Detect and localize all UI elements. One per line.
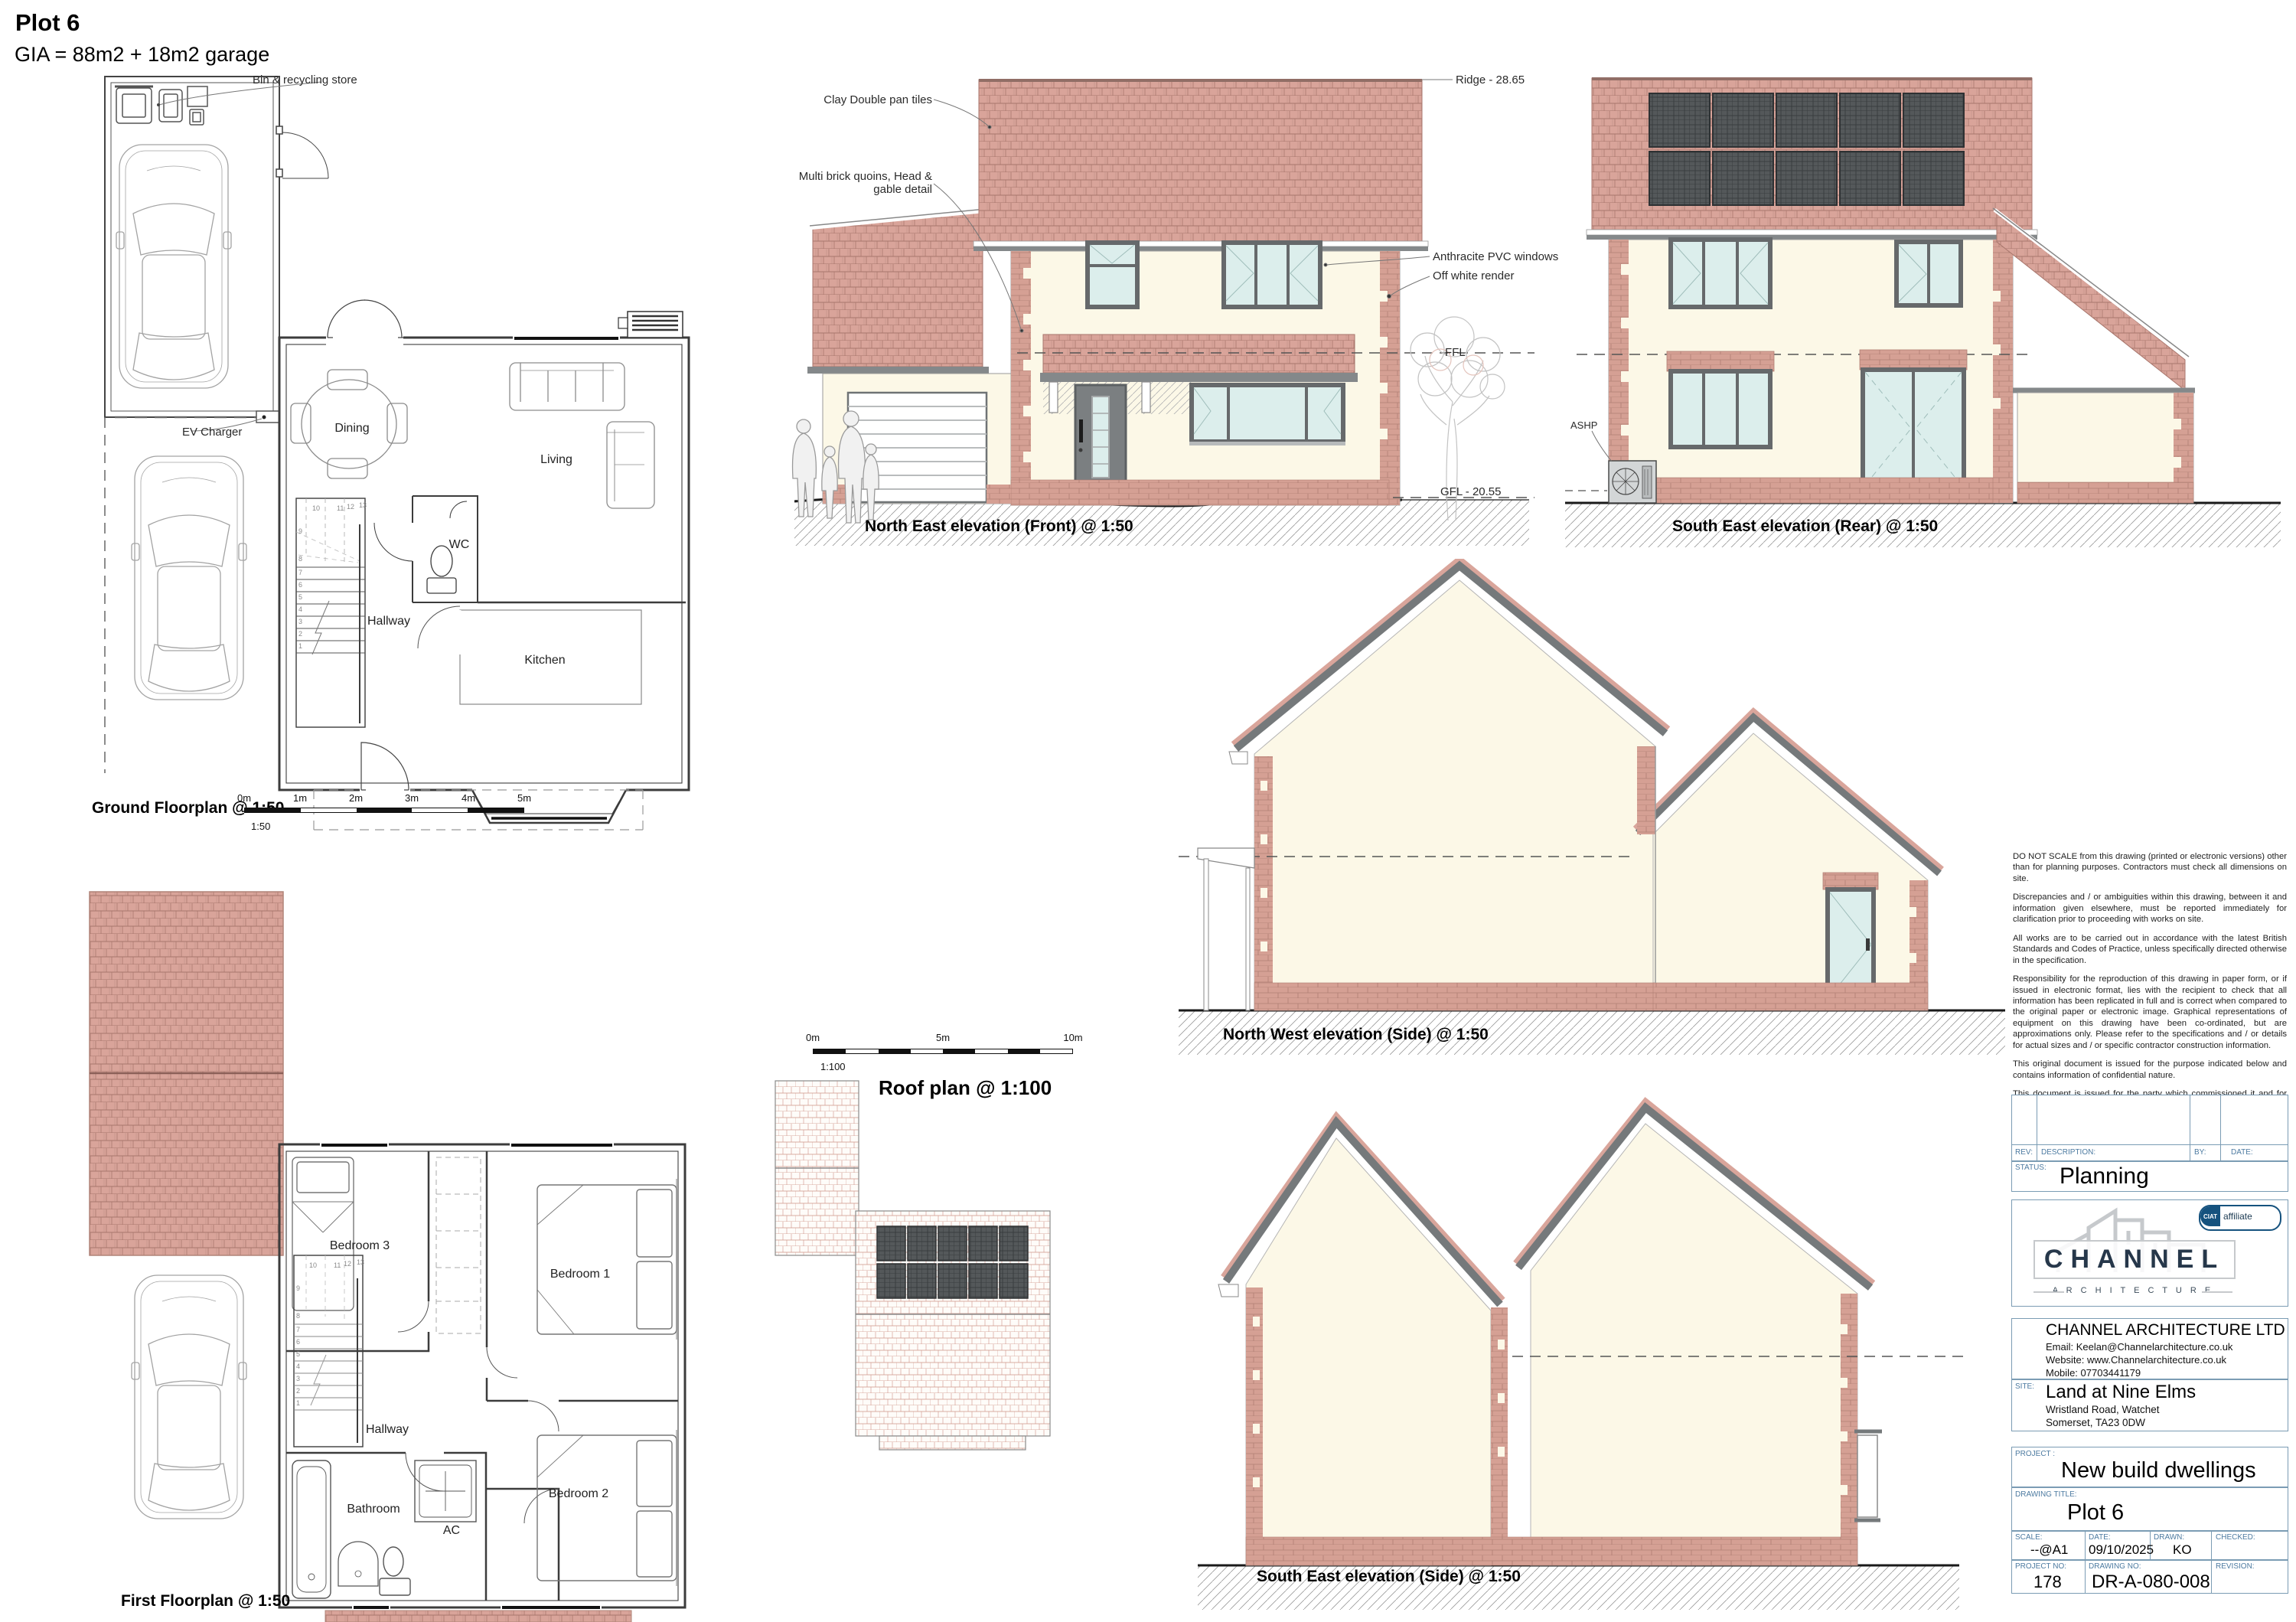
drawing-no-label: DRAWING NO:	[2089, 1562, 2141, 1571]
ann-clay-tiles: Clay Double pan tiles	[814, 93, 932, 106]
note-paragraph: Discrepancies and / or ambiguities withi…	[2013, 892, 2287, 925]
se-elevation-title: South East elevation (Side) @ 1:50	[1257, 1568, 1521, 1586]
svg-text:1: 1	[296, 1399, 300, 1407]
svg-text:13: 13	[359, 501, 367, 509]
room-label-bedroom3: Bedroom 3	[330, 1239, 390, 1253]
svg-text:2: 2	[298, 630, 302, 638]
svg-text:3: 3	[298, 618, 302, 625]
svg-text:7: 7	[298, 569, 302, 576]
svg-text:8: 8	[296, 1312, 300, 1320]
revision-label: REVISION:	[2216, 1562, 2255, 1571]
project-no-value: 178	[2033, 1572, 2062, 1592]
by-label: BY:	[2194, 1148, 2206, 1157]
upper-window-small	[1088, 243, 1137, 307]
checked-label: CHECKED:	[2216, 1533, 2255, 1542]
svg-text:9: 9	[296, 1284, 300, 1292]
main-roof-front	[979, 80, 1422, 241]
svg-text:11: 11	[337, 504, 344, 512]
drawing-sheet: Plot 6 GIA = 88m2 + 18m2 garage	[0, 0, 2296, 1622]
project-no-label: PROJECT NO:	[2015, 1562, 2066, 1571]
svg-text:3: 3	[296, 1375, 300, 1382]
ground-floor-plan-drawing: 10 11 12 13 9 8 7 6 5 4 3 2 1	[69, 65, 735, 831]
bin-store-icons	[115, 86, 207, 125]
gf-scale-0: 0m	[237, 792, 251, 804]
note-paragraph: All works are to be carried out in accor…	[2013, 933, 2287, 966]
gf-scale-bar	[244, 808, 524, 813]
rev-label: REV:	[2015, 1148, 2033, 1157]
svg-text:10: 10	[309, 1261, 317, 1269]
rp-scale-ratio: 1:100	[820, 1061, 846, 1072]
nw-door	[1823, 873, 1878, 1000]
rp-scale-bar	[813, 1049, 1073, 1054]
ann-render: Off white render	[1433, 269, 1514, 282]
upper-window-wide	[1224, 243, 1320, 307]
drawing-title-value: Plot 6	[2067, 1500, 2124, 1526]
drawn-value: KO	[2173, 1542, 2192, 1558]
company-mobile: Mobile: 07703441179	[2046, 1367, 2141, 1379]
site-name: Land at Nine Elms	[2046, 1382, 2196, 1403]
sofa-icons	[510, 363, 654, 508]
fields-row1: SCALE: --@A1 DATE: 09/10/2025 DRAWN: KO …	[2011, 1531, 2288, 1560]
logo-sub: A R C H I T E C T U R E	[2033, 1286, 2232, 1295]
company-name: CHANNEL ARCHITECTURE LTD	[2046, 1321, 2285, 1340]
kitchen-window	[1189, 385, 1345, 445]
company-box: CHANNEL ARCHITECTURE LTD Email: Keelan@C…	[2011, 1318, 2288, 1379]
room-label-bedroom2: Bedroom 2	[549, 1487, 608, 1501]
room-label-dining: Dining	[334, 422, 369, 436]
revision-table: REV: DESCRIPTION: BY: DATE:	[2011, 1095, 2288, 1161]
svg-text:13: 13	[357, 1258, 364, 1266]
heat-unit-icon	[618, 312, 683, 338]
affiliate-label: affiliate	[2223, 1211, 2252, 1222]
page-title: Plot 6	[15, 9, 80, 37]
fields-row2: PROJECT NO: 178 DRAWING NO: DR-A-080-008…	[2011, 1560, 2288, 1594]
room-label-ac: AC	[443, 1524, 460, 1538]
description-label: DESCRIPTION:	[2041, 1148, 2095, 1157]
site-address1: Wristland Road, Watchet	[2046, 1404, 2160, 1415]
drawing-title-label: DRAWING TITLE:	[2015, 1490, 2077, 1499]
status-box: STATUS: Planning	[2011, 1161, 2288, 1192]
porch-canopy	[1043, 335, 1355, 373]
date-col-label: DATE:	[2231, 1148, 2253, 1157]
first-floor-plan-drawing: 10 11 12 13 9 8 7 6 5 4 3 2 1	[69, 873, 735, 1622]
site-label: SITE:	[2015, 1382, 2034, 1391]
svg-text:2: 2	[296, 1387, 300, 1395]
project-label: PROJECT :	[2015, 1450, 2055, 1458]
rear-elevation-title: South East elevation (Rear) @ 1:50	[1672, 517, 1938, 536]
front-elevation-title: North East elevation (Front) @ 1:50	[865, 517, 1133, 536]
bin-store-label: Bin & recycling store	[253, 73, 357, 86]
svg-text:8: 8	[298, 555, 302, 563]
ciat-affiliate-badge: CIAT affiliate	[2199, 1205, 2281, 1231]
site-box: SITE: Land at Nine Elms Wristland Road, …	[2011, 1379, 2288, 1431]
rear-elevation-drawing	[1561, 65, 2288, 559]
svg-text:5: 5	[298, 593, 302, 601]
rear-garage	[1993, 208, 2195, 503]
room-label-wc: WC	[449, 538, 470, 552]
svg-text:12: 12	[347, 503, 354, 511]
status-label: STATUS:	[2015, 1163, 2047, 1172]
ann-gfl: GFL - 20.55	[1440, 485, 1501, 498]
logo-box: CHANNEL A R C H I T E C T U R E CIAT aff…	[2011, 1199, 2288, 1307]
svg-text:5: 5	[296, 1350, 300, 1358]
project-value: New build dwellings	[2061, 1458, 2256, 1483]
room-label-hallway-ff: Hallway	[366, 1423, 409, 1437]
side-porch-canopy	[1198, 848, 1254, 1010]
stairs-ground	[296, 498, 365, 727]
scale-label: SCALE:	[2015, 1533, 2043, 1542]
front-elevation-drawing	[781, 65, 1546, 559]
company-email: Email: Keelan@Channelarchitecture.co.uk	[2046, 1341, 2232, 1353]
ann-ffl: FFL	[1445, 346, 1466, 359]
note-paragraph: DO NOT SCALE from this drawing (printed …	[2013, 851, 2287, 884]
room-label-bathroom: Bathroom	[347, 1503, 400, 1516]
drawing-title-box: DRAWING TITLE: Plot 6	[2011, 1487, 2288, 1531]
se-elevation-drawing	[1194, 1095, 1975, 1622]
ciat-label: CIAT	[2200, 1206, 2220, 1226]
svg-text:12: 12	[344, 1260, 351, 1268]
ann-quoins: Multi brick quoins, Head & gable detail	[781, 170, 932, 196]
nw-elevation-title: North West elevation (Side) @ 1:50	[1223, 1026, 1489, 1044]
nw-elevation-drawing	[1179, 559, 2020, 1064]
gf-scale-ratio: 1:50	[251, 821, 270, 832]
ann-windows: Anthracite PVC windows	[1433, 250, 1558, 263]
ann-quoins-line1: Multi brick quoins, Head &	[781, 170, 932, 183]
room-label-living: Living	[540, 453, 572, 467]
ann-ridge: Ridge - 28.65	[1456, 73, 1525, 86]
gia-subtitle: GIA = 88m2 + 18m2 garage	[15, 43, 269, 67]
svg-text:4: 4	[296, 1363, 300, 1370]
company-website: Website: www.Channelarchitecture.co.uk	[2046, 1354, 2226, 1366]
svg-text:6: 6	[298, 581, 302, 589]
room-label-kitchen: Kitchen	[524, 654, 565, 667]
svg-text:7: 7	[296, 1326, 300, 1333]
ashp-unit	[1609, 461, 1656, 503]
french-doors	[328, 300, 403, 338]
rp-scale-0: 0m	[806, 1032, 820, 1043]
bed-icons	[292, 1157, 677, 1586]
note-paragraph: Responsibility for the reproduction of t…	[2013, 974, 2287, 1051]
first-floorplan-title: First Floorplan @ 1:50	[121, 1592, 290, 1611]
roof-plan-title: Roof plan @ 1:100	[879, 1076, 1052, 1100]
status-value: Planning	[2060, 1163, 2149, 1190]
date-value: 09/10/2025	[2089, 1542, 2154, 1558]
svg-text:11: 11	[334, 1261, 341, 1269]
date-label: DATE:	[2089, 1533, 2111, 1542]
project-box: PROJECT : New build dwellings	[2011, 1447, 2288, 1487]
room-label-hallway-gf: Hallway	[367, 615, 410, 628]
svg-text:9: 9	[298, 527, 302, 535]
ann-quoins-line2: gable detail	[781, 183, 932, 196]
scale-value: --@A1	[2030, 1542, 2068, 1558]
svg-text:6: 6	[296, 1338, 300, 1346]
svg-text:10: 10	[312, 504, 320, 512]
note-paragraph: This original document is issued for the…	[2013, 1059, 2287, 1081]
logo-name: CHANNEL	[2033, 1240, 2236, 1279]
room-label-bedroom1: Bedroom 1	[550, 1268, 610, 1281]
drawn-label: DRAWN:	[2154, 1533, 2184, 1542]
svg-text:1: 1	[298, 642, 302, 650]
svg-text:4: 4	[298, 605, 302, 613]
site-address2: Somerset, TA23 0DW	[2046, 1417, 2145, 1428]
ann-ashp: ASHP	[1570, 419, 1597, 431]
ev-charger-label: EV Charger	[182, 426, 242, 439]
drawing-no-value: DR-A-080-008	[2092, 1571, 2210, 1593]
